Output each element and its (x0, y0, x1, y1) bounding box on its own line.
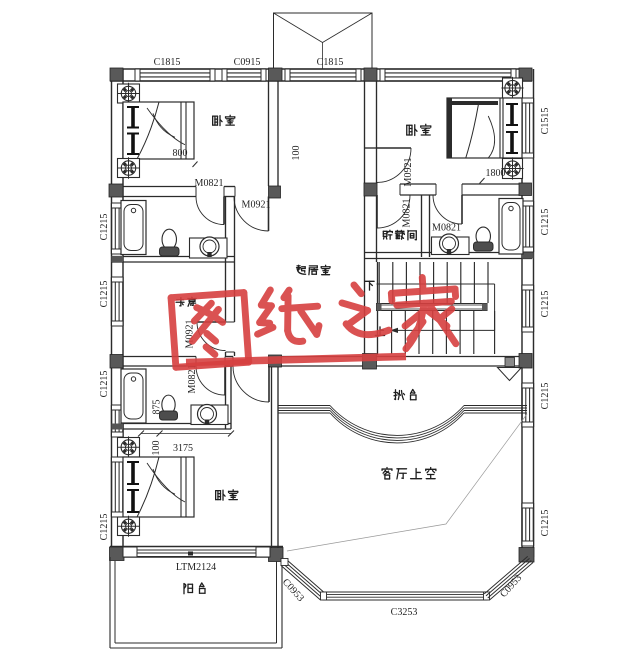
svg-text:C1815: C1815 (317, 57, 344, 68)
svg-text:800: 800 (173, 148, 188, 159)
svg-text:M0921: M0921 (403, 158, 414, 187)
svg-text:M0821: M0821 (195, 178, 224, 189)
svg-text:M0821: M0821 (402, 199, 413, 228)
svg-text:C1215: C1215 (99, 371, 110, 398)
svg-text:1800: 1800 (486, 168, 506, 179)
svg-text:3175: 3175 (173, 443, 193, 454)
svg-text:100: 100 (151, 441, 162, 456)
svg-text:M0921: M0921 (242, 200, 271, 211)
svg-text:C1815: C1815 (154, 57, 181, 68)
svg-text:M0821: M0821 (432, 223, 461, 234)
svg-text:C1215: C1215 (540, 209, 551, 236)
svg-text:C3253: C3253 (391, 607, 418, 618)
svg-text:C1215: C1215 (540, 383, 551, 410)
svg-text:875: 875 (152, 400, 163, 415)
svg-text:LTM2124: LTM2124 (176, 562, 216, 573)
svg-text:100: 100 (291, 146, 302, 161)
svg-text:C1215: C1215 (99, 214, 110, 241)
svg-text:C1215: C1215 (540, 291, 551, 318)
svg-text:C1215: C1215 (540, 510, 551, 537)
svg-text:C1215: C1215 (99, 281, 110, 308)
svg-text:C1515: C1515 (540, 108, 551, 135)
svg-text:C1215: C1215 (99, 514, 110, 541)
svg-text:C0915: C0915 (234, 57, 261, 68)
